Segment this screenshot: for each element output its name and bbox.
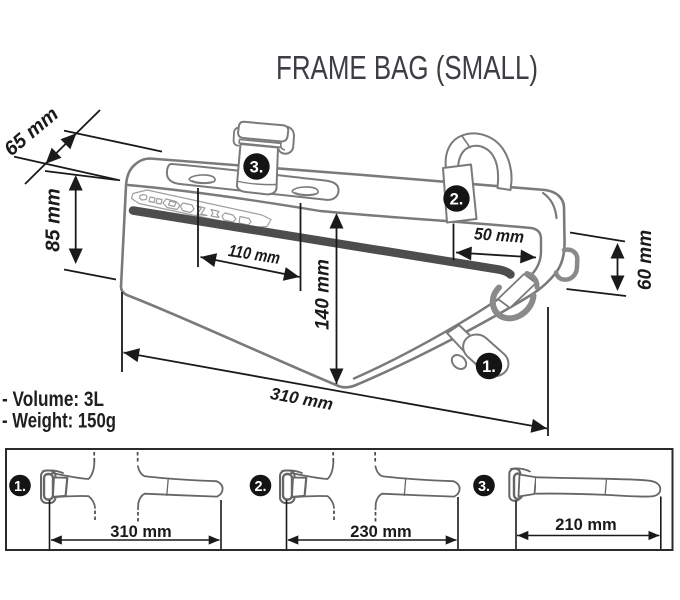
svg-text:3.: 3. bbox=[478, 479, 490, 495]
svg-text:- Volume: 3L: - Volume: 3L bbox=[2, 388, 104, 411]
svg-text:FRAME BAG (SMALL): FRAME BAG (SMALL) bbox=[276, 49, 538, 86]
svg-text:50 mm: 50 mm bbox=[473, 224, 524, 246]
svg-text:85 mm: 85 mm bbox=[42, 188, 64, 251]
svg-text:140 mm: 140 mm bbox=[313, 259, 334, 330]
svg-text:3.: 3. bbox=[250, 159, 264, 177]
svg-text:310 mm: 310 mm bbox=[110, 523, 171, 541]
svg-text:1.: 1. bbox=[14, 479, 26, 495]
svg-text:60 mm: 60 mm bbox=[635, 230, 656, 290]
svg-text:230 mm: 230 mm bbox=[350, 523, 411, 541]
svg-text:1.: 1. bbox=[482, 358, 496, 376]
svg-text:2.: 2. bbox=[450, 191, 464, 209]
svg-text:210 mm: 210 mm bbox=[555, 516, 616, 534]
svg-text:2.: 2. bbox=[254, 479, 266, 495]
svg-text:- Weight: 150g: - Weight: 150g bbox=[2, 410, 116, 433]
